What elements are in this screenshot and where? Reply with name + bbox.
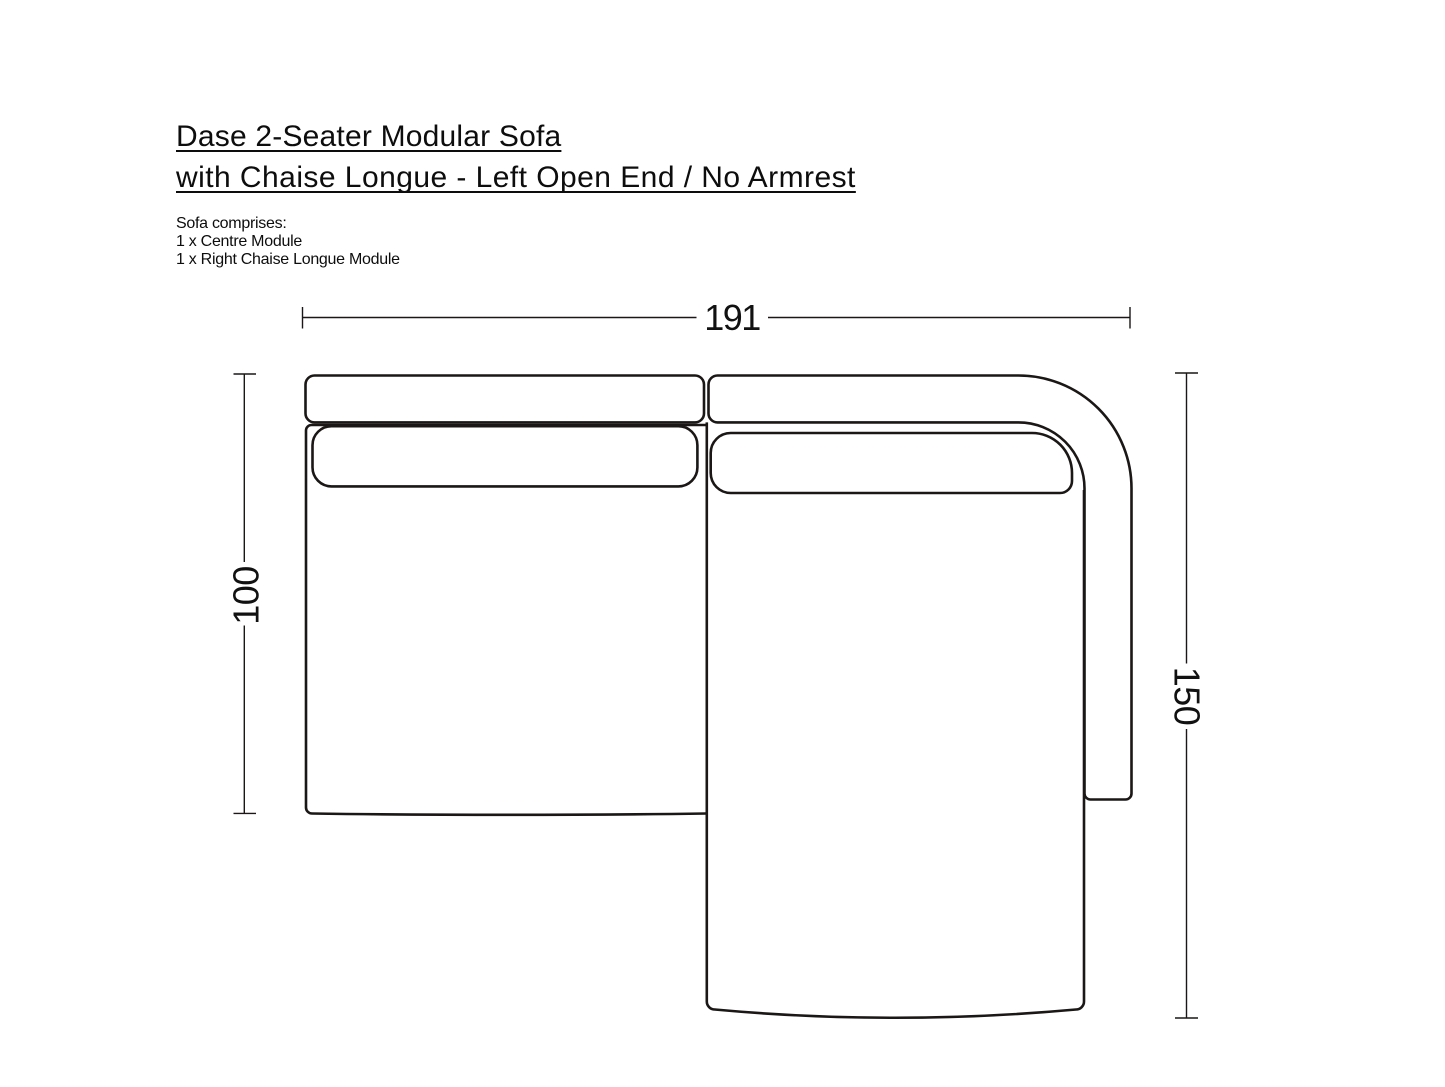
- svg-text:100: 100: [226, 566, 267, 625]
- svg-text:191: 191: [704, 297, 760, 338]
- svg-text:150: 150: [1167, 667, 1208, 726]
